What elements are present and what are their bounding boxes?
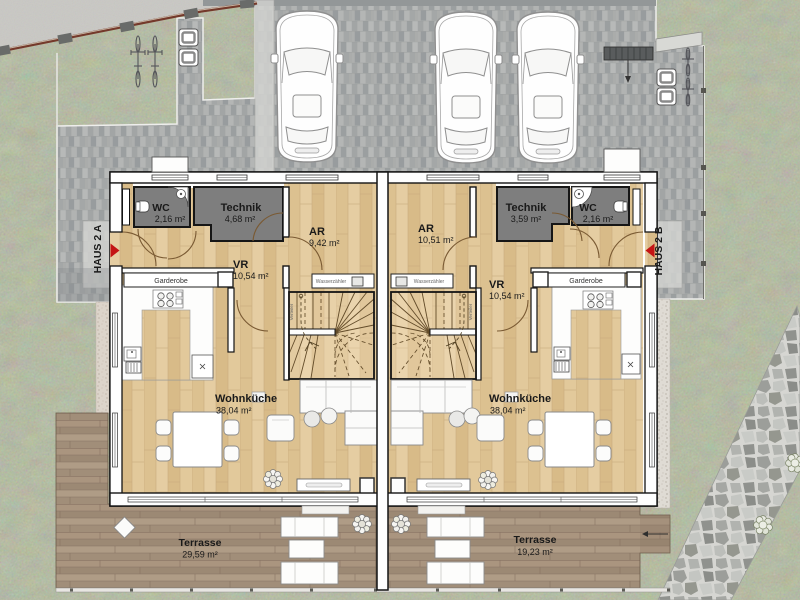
- svg-text:Terrasse: Terrasse: [513, 534, 556, 546]
- svg-text:HAUS 2 A: HAUS 2 A: [92, 224, 104, 273]
- svg-text:Wasserzähler: Wasserzähler: [316, 279, 347, 285]
- svg-text:AR: AR: [418, 223, 434, 235]
- svg-text:VR: VR: [489, 279, 504, 291]
- svg-text:Verteiler: Verteiler: [289, 303, 294, 320]
- svg-text:38,04 m²: 38,04 m²: [216, 406, 252, 416]
- svg-text:10,54 m²: 10,54 m²: [489, 291, 525, 301]
- svg-text:2,16 m²: 2,16 m²: [155, 214, 186, 224]
- svg-text:Garderobe: Garderobe: [154, 278, 188, 285]
- svg-text:AR: AR: [309, 226, 325, 238]
- svg-text:4,68 m²: 4,68 m²: [225, 214, 256, 224]
- svg-text:2,16 m²: 2,16 m²: [583, 214, 614, 224]
- svg-text:38,04 m²: 38,04 m²: [490, 406, 526, 416]
- svg-text:Wasserzähler: Wasserzähler: [414, 279, 445, 285]
- svg-text:VR: VR: [233, 259, 248, 271]
- svg-text:WC: WC: [152, 202, 170, 214]
- svg-text:Garderobe: Garderobe: [569, 278, 603, 285]
- svg-text:Technik: Technik: [506, 202, 548, 214]
- svg-text:29,59 m²: 29,59 m²: [182, 550, 218, 560]
- svg-text:9,42 m²: 9,42 m²: [309, 238, 340, 248]
- svg-text:WC: WC: [579, 202, 597, 214]
- svg-text:Technik: Technik: [221, 202, 263, 214]
- svg-text:10,54 m²: 10,54 m²: [233, 271, 269, 281]
- svg-text:10,51 m²: 10,51 m²: [418, 235, 454, 245]
- svg-text:Wohnküche: Wohnküche: [215, 393, 277, 405]
- svg-text:HAUS 2 B: HAUS 2 B: [653, 226, 665, 275]
- svg-text:19,23 m²: 19,23 m²: [517, 547, 553, 557]
- svg-text:Verteiler: Verteiler: [468, 303, 473, 320]
- svg-text:Wohnküche: Wohnküche: [489, 393, 551, 405]
- svg-text:3,59 m²: 3,59 m²: [511, 214, 542, 224]
- svg-text:Terrasse: Terrasse: [178, 537, 221, 549]
